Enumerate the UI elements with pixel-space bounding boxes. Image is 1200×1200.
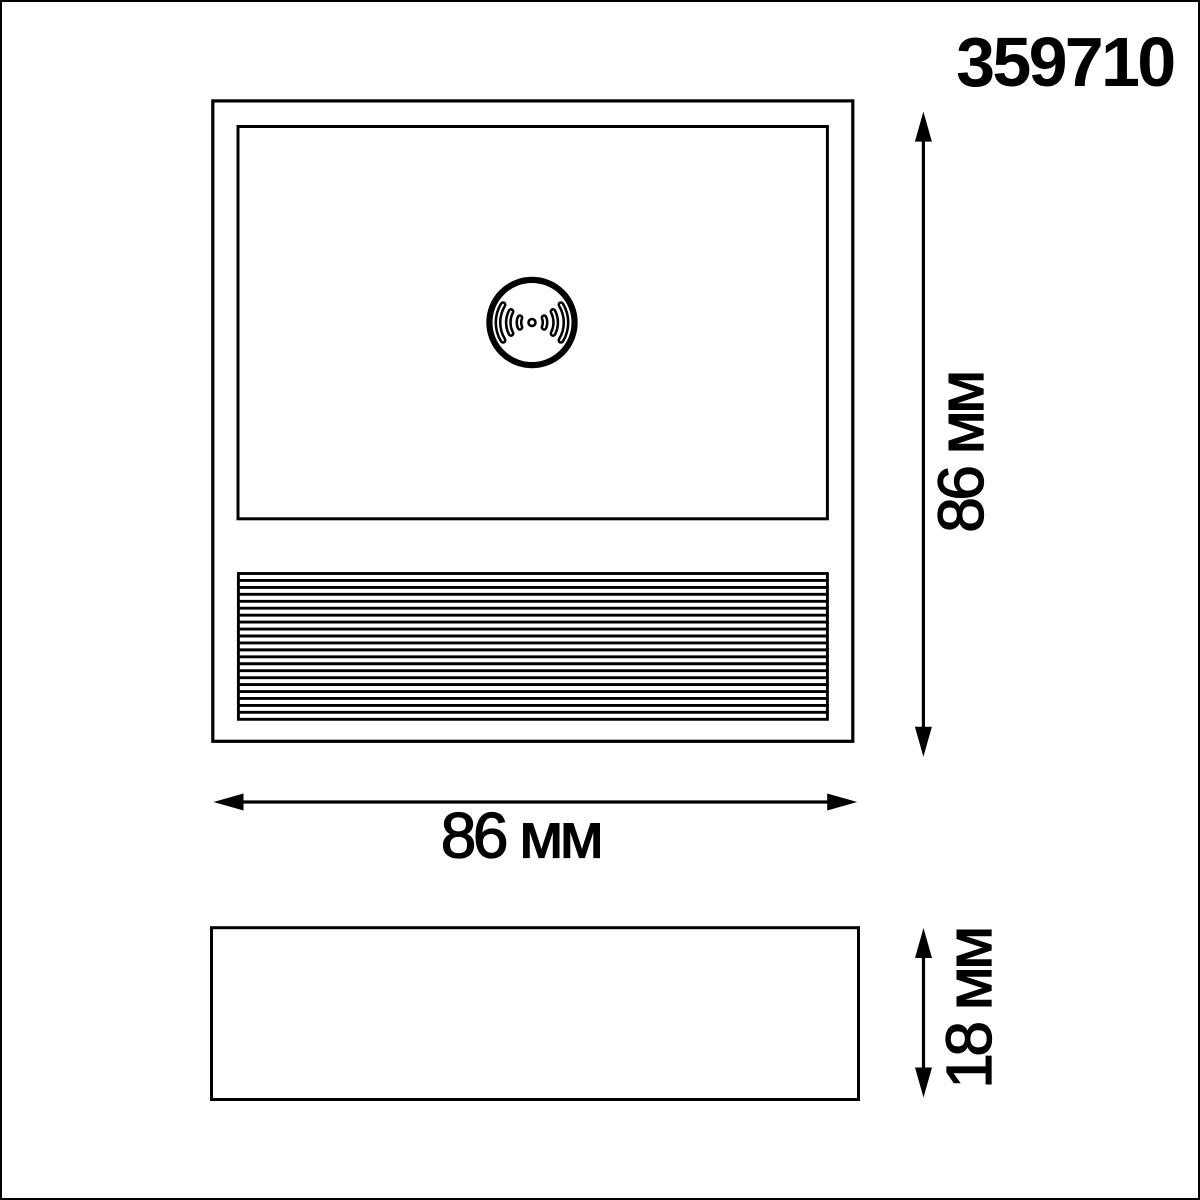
svg-text:86 мм: 86 мм xyxy=(441,800,600,872)
svg-text:18 мм: 18 мм xyxy=(933,929,1005,1088)
svg-text:359710: 359710 xyxy=(956,23,1174,101)
svg-text:86 мм: 86 мм xyxy=(925,373,997,532)
